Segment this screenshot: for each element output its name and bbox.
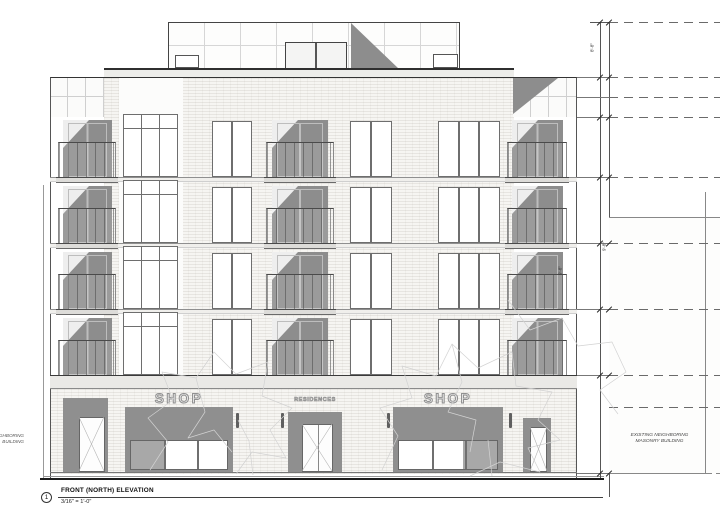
level-dashed-line xyxy=(609,177,720,178)
level-dashed-line xyxy=(609,407,720,408)
level-line xyxy=(577,375,609,376)
level-line xyxy=(577,473,609,474)
level-line xyxy=(577,117,609,118)
level-dashed-line xyxy=(609,309,720,310)
level-line xyxy=(577,177,609,178)
level-line xyxy=(577,77,609,78)
level-dashed-line xyxy=(609,243,720,244)
level-dashed-line xyxy=(609,97,720,98)
level-line xyxy=(577,309,609,310)
level-line xyxy=(577,243,609,244)
annotation-layer xyxy=(0,0,720,520)
elevation-drawing: SHOP SHOP RESIDENCES 1 FRONT (NORTH) ELE… xyxy=(0,0,720,520)
level-dashed-line xyxy=(609,22,720,23)
level-dashed-line xyxy=(609,375,720,376)
level-line xyxy=(577,97,609,98)
level-dashed-line xyxy=(609,77,720,78)
level-dashed-line xyxy=(609,117,720,118)
dimension-tick xyxy=(606,470,612,476)
